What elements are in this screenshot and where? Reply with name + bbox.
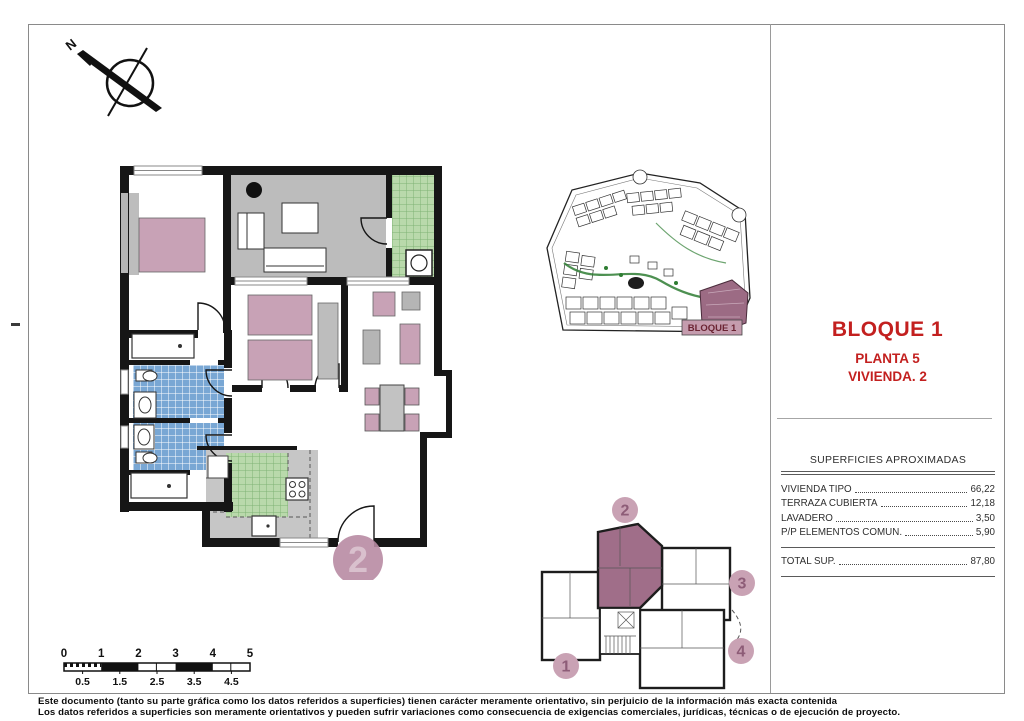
floor-plan: 2 bbox=[106, 156, 458, 580]
svg-text:5: 5 bbox=[247, 648, 254, 660]
scale-major-labels: 0 1 2 3 4 5 bbox=[61, 648, 254, 660]
dotted-leader bbox=[839, 564, 968, 565]
disclaimer-line-1: Este documento (tanto su parte gráfica c… bbox=[38, 697, 1000, 708]
total-rule-top bbox=[781, 547, 995, 548]
total-row: TOTAL SUP. 87,80 bbox=[781, 556, 995, 567]
unit-1-label: 1 bbox=[562, 659, 571, 676]
scale-bar-graphic bbox=[64, 663, 250, 674]
registration-mark bbox=[11, 323, 20, 326]
total-value: 87,80 bbox=[970, 556, 995, 567]
block-title: BLOQUE 1 bbox=[771, 318, 1004, 342]
dotted-leader bbox=[905, 535, 973, 536]
scale-minor-labels: 0.5 1.5 2.5 3.5 4.5 bbox=[75, 676, 239, 688]
site-block-label: BLOQUE 1 bbox=[682, 320, 742, 335]
header-rule-1 bbox=[781, 471, 995, 472]
area-row: TERRAZA CUBIERTA12,18 bbox=[781, 498, 995, 509]
unit-2-label: 2 bbox=[621, 503, 630, 520]
area-row: P/P ELEMENTOS COMUN.5,90 bbox=[781, 527, 995, 538]
total-rule-bottom bbox=[781, 576, 995, 577]
area-row-value: 3,50 bbox=[976, 513, 995, 524]
dotted-leader bbox=[855, 492, 968, 493]
unit-number: 2 bbox=[348, 539, 368, 580]
svg-text:1.5: 1.5 bbox=[112, 676, 127, 688]
dwelling-title: VIVIENDA. 2 bbox=[771, 369, 1004, 384]
areas-table: SUPERFICIES APROXIMADAS VIVIENDA TIPO66,… bbox=[781, 454, 995, 577]
svg-text:4.5: 4.5 bbox=[224, 676, 239, 688]
svg-text:0: 0 bbox=[61, 648, 67, 660]
site-plan: BLOQUE 1 bbox=[536, 163, 764, 355]
scale-bar: 0 1 2 3 4 5 0.5 1.5 2.5 3.5 4.5 bbox=[46, 643, 266, 689]
svg-text:1: 1 bbox=[98, 648, 105, 660]
svg-text:2.5: 2.5 bbox=[150, 676, 165, 688]
area-row-value: 12,18 bbox=[970, 498, 995, 509]
area-row: LAVADERO3,50 bbox=[781, 513, 995, 524]
floor-title: PLANTA 5 bbox=[771, 351, 1004, 366]
header-rule-2 bbox=[781, 474, 995, 475]
footer-disclaimer: Este documento (tanto su parte gráfica c… bbox=[38, 697, 1000, 718]
area-row: VIVIENDA TIPO66,22 bbox=[781, 484, 995, 495]
unit-4-label: 4 bbox=[737, 644, 746, 661]
svg-text:3: 3 bbox=[172, 648, 178, 660]
area-row-label: P/P ELEMENTOS COMUN. bbox=[781, 527, 902, 538]
areas-rows: VIVIENDA TIPO66,22TERRAZA CUBIERTA12,18L… bbox=[781, 484, 995, 538]
north-label: N bbox=[63, 36, 80, 54]
disclaimer-line-2: Los datos referidos a superficies son me… bbox=[38, 708, 1000, 719]
title-block: BLOQUE 1 PLANTA 5 VIVIENDA. 2 bbox=[771, 318, 1004, 384]
total-label: TOTAL SUP. bbox=[781, 556, 836, 567]
svg-text:3.5: 3.5 bbox=[187, 676, 202, 688]
plan-sheet: { "title_block": { "line1": "BLOQUE 1", … bbox=[0, 0, 1024, 721]
svg-text:4: 4 bbox=[210, 648, 217, 660]
area-row-label: TERRAZA CUBIERTA bbox=[781, 498, 878, 509]
title-separator-line bbox=[777, 418, 992, 419]
svg-text:0.5: 0.5 bbox=[75, 676, 90, 688]
key-plan: 1 2 3 4 bbox=[520, 488, 770, 692]
north-compass: N bbox=[50, 28, 185, 133]
site-block-label-text: BLOQUE 1 bbox=[688, 323, 737, 334]
areas-table-header: SUPERFICIES APROXIMADAS bbox=[781, 454, 995, 466]
dotted-leader bbox=[881, 506, 968, 507]
unit-3-label: 3 bbox=[738, 576, 747, 593]
area-row-label: VIVIENDA TIPO bbox=[781, 484, 852, 495]
dotted-leader bbox=[836, 521, 973, 522]
area-row-value: 66,22 bbox=[970, 484, 995, 495]
area-row-label: LAVADERO bbox=[781, 513, 833, 524]
area-row-value: 5,90 bbox=[976, 527, 995, 538]
svg-text:2: 2 bbox=[135, 648, 141, 660]
